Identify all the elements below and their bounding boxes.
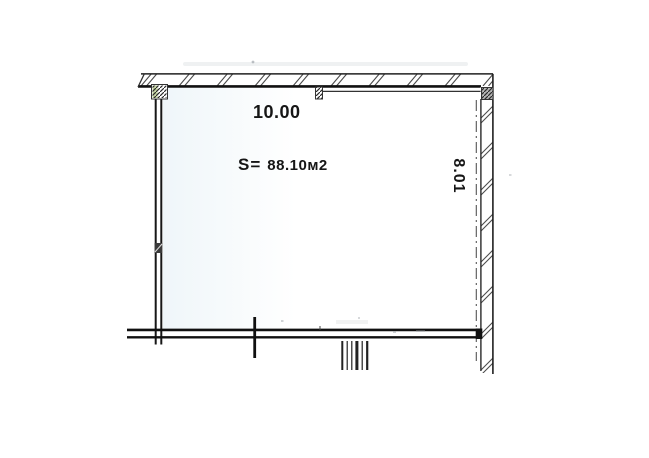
floor-plan-drawing [0, 0, 649, 458]
area-label-prefix: S= [238, 155, 261, 174]
floor-plan-canvas: 10.00 S=88.10м2 8.01 [0, 0, 649, 458]
left-wall [155, 99, 163, 345]
right-wall [481, 74, 493, 374]
stairs-grille-symbol [342, 341, 367, 370]
bottom-wall [127, 317, 482, 358]
area-label-value: 88.10м2 [267, 157, 327, 174]
area-label: S=88.10м2 [238, 155, 328, 175]
top-right-corner-pier [482, 88, 494, 100]
width-dimension-label: 10.00 [253, 102, 301, 123]
height-dimension-label: 8.01 [449, 155, 467, 197]
mid-top-pier [316, 87, 323, 99]
top-left-corner-pier [152, 85, 168, 100]
